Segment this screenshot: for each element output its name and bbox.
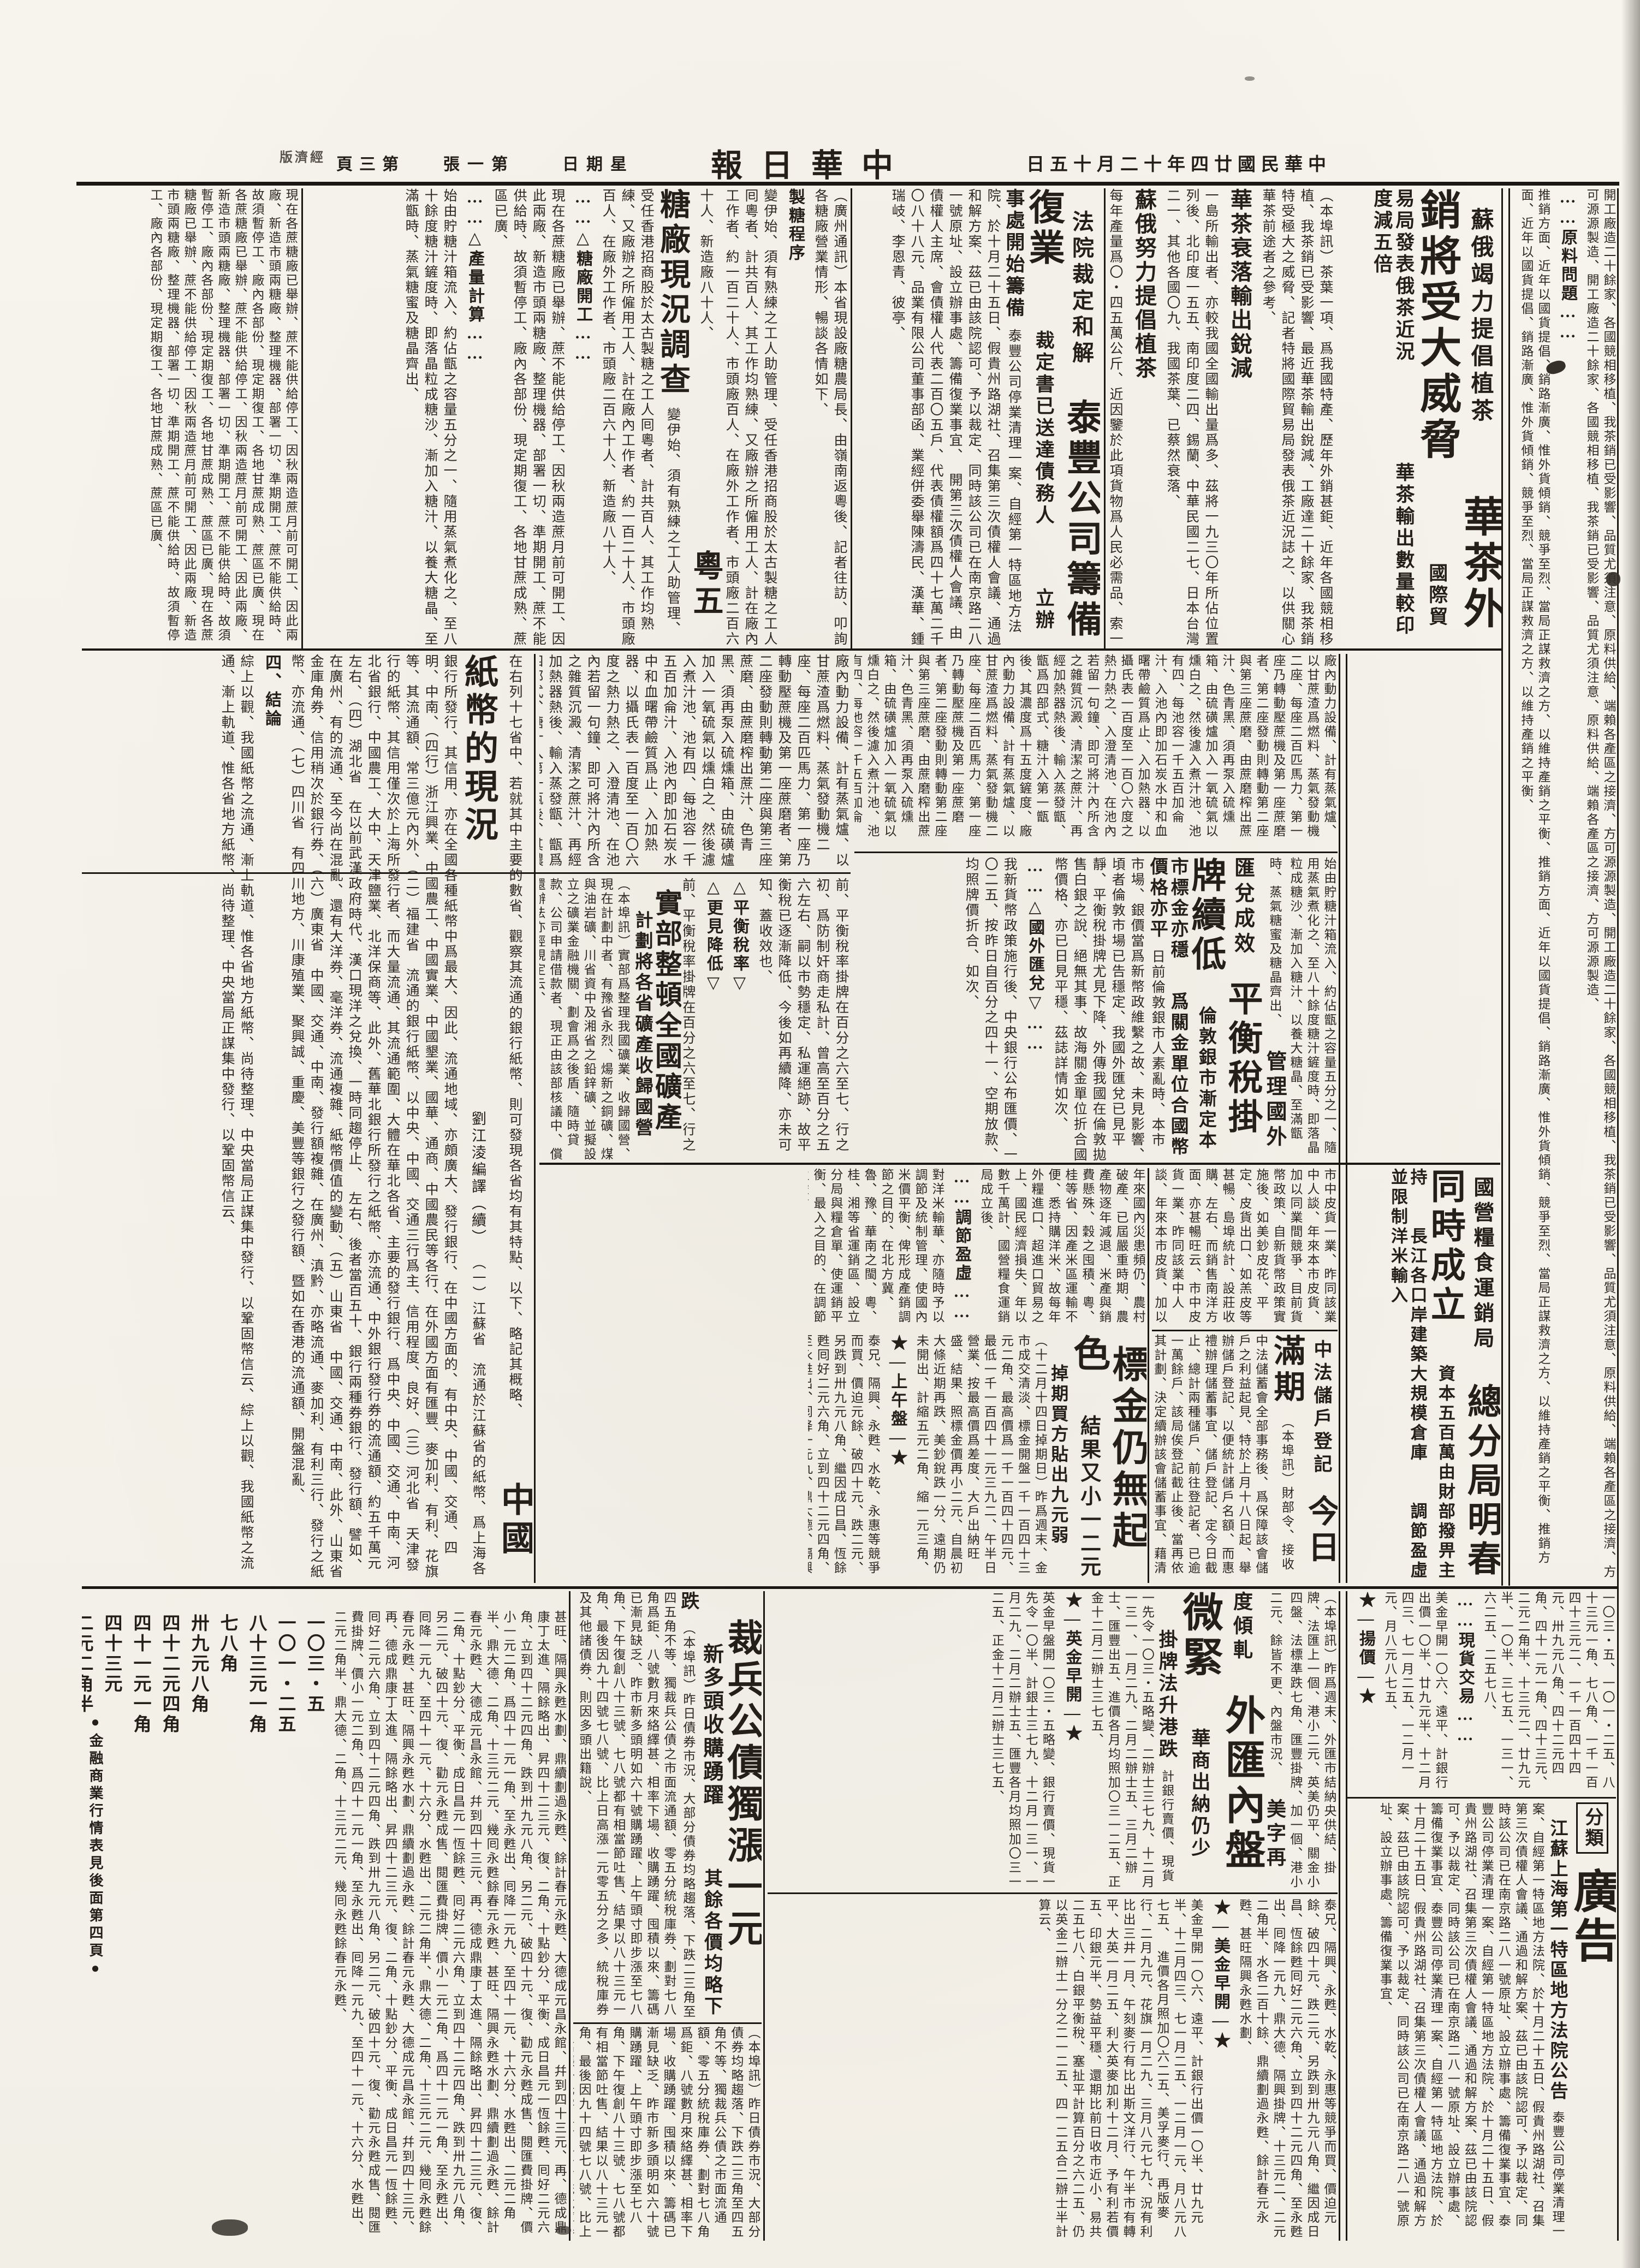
- inner-rule: [1152, 1330, 1338, 1331]
- banknotes-article: 在右列十七省中、若就其中主要的數省、觀察其流通的銀行紙幣、則可發現各省均有其特點…: [82, 654, 532, 1583]
- inner-rule: [573, 2022, 762, 2024]
- article-text: （本埠訊）茶葉一項、爲我國特產、歷年外銷甚鉅、近年各國競相移植、我茶銷已受影響、…: [1261, 188, 1333, 647]
- section-conclusion: 四、結論: [261, 654, 282, 1583]
- section-mill-start: ……△糖廠開工……: [572, 188, 593, 650]
- quote-value: 八十三元一角: [244, 1614, 268, 2237]
- forex-article: （本埠訊）昨爲週末、外匯市結納央供結、掛牌、法匯上一個、港小二元、英美仍平、關金…: [768, 1591, 1338, 1890]
- section-usd-opening: ★—美金早開—★: [1210, 1898, 1231, 2241]
- section-rate-lower: △更見降低▽: [703, 878, 723, 1163]
- quotation-text: 一〇三・五、一〇一・二五、八十三元一角、七八角、一千一百四十三元二、一千一百四十…: [1482, 1591, 1614, 1790]
- grain-kicker: 國營糧食運銷局: [1470, 1168, 1493, 1352]
- scan-artifact: [212, 2219, 248, 2236]
- bonds-article: 裁兵公債獨漲一元 新多頭收購踴躍 其餘各價均略下跌 （本埠訊）昨日債券市況、大部…: [573, 1591, 762, 2022]
- lead-article-kicker: 蘇俄竭力提倡植茶: [1467, 188, 1493, 426]
- forex-subhead: 掛牌法升港跌: [1156, 1591, 1178, 1760]
- mining-subhead: 計劃將各省礦產收歸國營: [632, 878, 652, 1139]
- zhongfa-savings-article: 中法儲戶登記 今日滿期 （本埠訊）財部令、接收中法儲蓄會全部事務後、爲保障該會儲…: [1152, 1334, 1338, 1583]
- scan-artifact: [1245, 76, 1255, 81]
- column-divider-rule: [851, 188, 852, 648]
- section-foreign-exchange: ……△國外匯兌▽……: [1024, 857, 1045, 1163]
- mining-article: 實部整頓全國礦產 計劃將各省礦產收歸國營 （本埠訊）實部爲整理我國礦業、收歸國營…: [539, 878, 681, 1163]
- article-text: 一島所輸出者、亦較我國全國輸出量爲多、茲將一九三〇年所佔位置列後、北印度一五五、…: [1165, 188, 1218, 647]
- article-text: （本埠訊）昨日債券市況、大部分債券均略趨落、下跌二三角至四五角不等、獨裁兵公債之…: [573, 2026, 760, 2239]
- taifeng-subhead: 裁定書已送達債務人: [1033, 278, 1054, 527]
- article-text: 進價各月照加〇六二五、美孚麥行、再版麥行、二月九元、花旗一月二九、三月八元七九、…: [1037, 1898, 1169, 2239]
- section-raw-material-problem: ……原料問題……: [1557, 188, 1578, 1586]
- article-text: （本埠訊）昨日債券市況、大部分債券均略趨落、下跌二三角至四五角不等、獨裁兵公債之…: [578, 1591, 695, 2019]
- quote-value: 一〇三・五: [302, 1614, 326, 2237]
- band-rule: [82, 648, 1502, 651]
- masthead-sheet-number: 張一第: [443, 151, 515, 175]
- classified-ads: 分類 廣告 江蘇上海第一特區地方法院公告 泰豐公司停業清理一案、自經第一特區地方…: [1346, 1802, 1616, 2241]
- article-text: （廣州通訊）本省現設廠糖農局長、由嶺南返粵後、記者往訪、叩詢各糖廠營業情形、暢談…: [813, 188, 847, 647]
- scan-edge-shadow: [1621, 0, 1640, 2268]
- quotation-text: 甚旺、隔興永甦水劃、鼎續劃過永甦、餘計春元永甦、大德成元昌永館、幷到四十三元、再…: [332, 1610, 566, 2235]
- article-text: 對洋米輸華、亦隨時予以調節及統制管理、使國內米價平衡、俾形成產銷調節之目的、在北…: [808, 1168, 944, 1324]
- ads-label-big: 廣告: [1567, 1867, 1616, 1966]
- article-text: 廠內動力設備、計有蒸氣爐、以甘蔗渣爲燃料、蒸氣發動機二座、每座二百匹馬力、第一座…: [854, 654, 1336, 838]
- article-text: 現在各蔗糖廠已舉辦、蔗不能供給停工、因秋兩造蔗月前可開工、因此兩廠、新造市頭兩糖…: [148, 188, 298, 642]
- section-sugar-process: 製糖程序: [785, 188, 805, 650]
- zhongfa-kicker: 中法儲戶登記: [1311, 1334, 1331, 1477]
- mining-headline: 實部整頓全國礦產: [651, 878, 681, 1133]
- masthead-section-label: 版濟經: [280, 146, 325, 165]
- right-column-article: 開工廠造二十餘家、各國競相移植、我茶銷已受影響、品質尤須注意、原料供給、端賴各產…: [1512, 188, 1617, 1586]
- sugar-survey-article: （廣州通訊）本省現設廠糖農局長、由嶺南返粵後、記者往訪、叩詢各糖廠營業情形、暢談…: [306, 188, 849, 650]
- article-text: 市中皮貨一業、昨同該業中人談、年來本市皮貨、加以同業間競爭、目前貨幣政策、自新貨…: [1152, 1168, 1336, 1324]
- newspaper-title: 報日華中: [711, 140, 912, 186]
- column-divider-rule: [1104, 188, 1106, 648]
- column-divider-rule: [569, 1591, 571, 2241]
- section-rising-price: ★—揚價—★: [1355, 1591, 1376, 1794]
- quote-value: 七八角: [215, 1614, 239, 2237]
- article-text: 前、平衡稅率掛牌在百分之六至七、行之初、爲防制奸商走私計、曾高至百分之五六左右、…: [757, 878, 848, 1153]
- scan-artifact: [556, 2226, 571, 2235]
- article-text: 綜上以觀、我國紙幣之流通、漸上軌道、惟各省地方紙幣、尚待整理、中央當局正謀集中發…: [219, 654, 253, 1571]
- inner-rule: [1346, 1797, 1616, 1799]
- section-sterling-opening: ★—英金早開—★: [1061, 1591, 1082, 1890]
- quotation-values: 一〇三・五一〇一・二五八十三元一角七八角卅九元八角四十二元四角四十一元一角四十三…: [82, 1610, 326, 2241]
- section-morning-session: ★—上午盤—★: [887, 1334, 907, 1583]
- article-text: （本埠訊）實部爲整理我國礦業、收歸國營、現在計劃中者、有豫省永烈、煬新之銅礦、煤…: [539, 878, 629, 1162]
- page-edge-rule: [1617, 188, 1619, 2241]
- section-tea-decline: 華茶衰落輸出銳減: [1226, 188, 1253, 650]
- article-text: 英金早盤開一〇三・五略變、銀行賣價、現貨一先令一〇半、計銀士三七九、十二月一三一…: [990, 1591, 1054, 1889]
- spot-price-strip: 一〇三・五、一〇一・二五、八十三元一角、七八角、一千一百四十三元二、一千一百四十…: [1346, 1591, 1616, 1794]
- taifeng-kicker: 法院裁定和解: [1069, 188, 1094, 367]
- right-column-text: 推銷方面、近年以國貨提倡、銷路漸廣、惟外貨傾銷、競爭至烈、當局正謀救濟之方、以維…: [1519, 188, 1550, 1565]
- grain-subhead: 長江各口岸建築大規模倉庫: [1408, 1197, 1427, 1463]
- column-divider-rule: [301, 188, 303, 648]
- bonds-continuation: （本埠訊）昨日債券市況、大部分債券均略趨落、下跌二三角至四五角不等、獨裁兵公債之…: [573, 2026, 762, 2241]
- article-text: 我新貨幣政策施行後、中央銀行公布匯價、一〇二五、按昨日自百分之四十一、空期放款、…: [964, 857, 1017, 1163]
- section-tax-rate: △平衡稅率▽: [729, 878, 750, 1163]
- ads-label-small: 分類: [1576, 1802, 1608, 1854]
- grain-bureau-headline-group: 國營糧食運銷局 總分局明春同時成立 資本五百萬由財部撥畀主持 長江各口岸建築大規…: [1343, 1168, 1500, 1583]
- masthead-page-number: 頁三第: [336, 151, 405, 175]
- section-soviet-planting: 蘇俄努力提倡植茶: [1130, 188, 1157, 650]
- masthead-weekday: 日期星: [562, 151, 634, 175]
- column-divider-rule: [534, 654, 536, 1583]
- sugar-strip-continuation: 廠內動力設備、計有蒸氣爐、以甘蔗渣爲燃料、蒸氣發動機二座、每座二百匹馬力、第一座…: [854, 654, 1338, 849]
- market-table-note: ●金融商業行情表見後面第四頁●: [85, 1714, 105, 1979]
- quote-value: 四十二元四角: [157, 1614, 181, 2237]
- column-divider-rule: [763, 1591, 765, 2241]
- forex-subhead: 華商出納仍少: [1189, 1690, 1210, 1859]
- bonds-headline: 裁兵公債獨漲一元: [722, 1591, 762, 1950]
- article-text: 每年產量爲〇・四五萬公斤、近因鑒於此項貨物爲人民必需品、索一帶區域種植茶園、一九…: [1108, 188, 1122, 647]
- top-left-continuation: 現在各蔗糖廠已舉辦、蔗不能供給停工、因秋兩造蔗月前可開工、因此兩廠、新造市頭兩糖…: [82, 188, 299, 650]
- inner-rule: [768, 1892, 1338, 1894]
- gold-market-article: 標金仍無起色 結果又小一二元 掉期買方貼出九元弱 （十二月十四日掉期日）昨爲週末…: [808, 1334, 1146, 1583]
- bonds-subhead: 新多頭收購踴躍: [700, 1591, 723, 1807]
- section-regulate-surplus: ……調節盈虛……: [951, 1168, 972, 1328]
- section-spot-trading: ……現貨交易……: [1454, 1591, 1475, 1794]
- article-text: 泰兄、隔興、永甦、水乾、永惠等競爭而買、價迫元餘、破四十元、跌二元、另跌到卅九元…: [808, 1334, 880, 1575]
- article-text: 前、平衡稅率掛牌在百分之六至七、行之初、爲防制奸商走私計、曾高至百分之五六左右、…: [684, 878, 695, 1153]
- balance-tax-article: 始由貯糖汁箱流入、約佔甑之容量五分之一、隨用蒸氣煮化之、至八十餘度糖汁鏟度時、即…: [854, 857, 1338, 1163]
- masthead-rule: [76, 182, 1619, 186]
- masthead-date: 日五十月二十年四廿國民華中: [1026, 150, 1332, 176]
- grain-article-body: 年來國內災患頻仍、農村破產、已屆嚴重時期、農產物逐年減退、米產與銷費懸殊、穀之囤…: [808, 1168, 1146, 1328]
- article-text: 在右列十七省中、若就其中主要的數省、觀察其流通的銀行紙幣、則可發現各省均有其特點…: [507, 654, 522, 1418]
- banknotes-byline: 劉江淩編譯（續）: [470, 854, 486, 1246]
- quotation-text: 美金早開一〇六、遠平、計銀行出價一〇半、廿九元半、十二月四三、七一月二五、一二月…: [1383, 1591, 1447, 1790]
- forex-continuation: 泰兄、隔興、永甦、水乾、永惠等競爭而買、價迫元餘、破四十元、跌二元、另跌到卅九元…: [768, 1898, 1338, 2241]
- ad-text: 泰豐公司停業清理一案、自經第一特區地方法院、於十月二十五日、假貴州路湖社、召集第…: [1378, 1802, 1564, 2239]
- inner-rule: [854, 852, 1338, 853]
- column-divider-rule: [1501, 188, 1510, 1586]
- court-notice-title: 江蘇上海第一特區地方法院公告: [1547, 1802, 1567, 2102]
- band-rule: [82, 1586, 1617, 1589]
- article-text: 廠內動力設備、計有蒸氣爐、以甘蔗渣爲燃料、蒸氣發動機二座、每座二百匹馬力、第一座…: [539, 654, 848, 868]
- right-column-text: 開工廠造二十餘家、各國競相移植、我茶銷已受影響、品質尤須注意、原料供給、端賴各產…: [1585, 188, 1615, 1579]
- quote-value: 卅九元八角: [186, 1614, 210, 2237]
- taifeng-article: 法院裁定和解 泰豐公司籌備復業 裁定書已送達債務人 立辦事處開始籌備 泰豐公司停…: [854, 188, 1100, 650]
- gold-subhead: 結果又小一二元: [1077, 1385, 1100, 1579]
- quote-value: 四十一元一角: [128, 1614, 152, 2237]
- lead-article-body: （本埠訊）茶葉一項、爲我國特產、歷年外銷甚鉅、近年各國競相移植、我茶銷已受影響、…: [1108, 188, 1335, 650]
- article-text: 泰兄、隔興、永甦、水乾、永惠等競爭而買、價迫元餘、破四十元、跌二元、另跌到卅九元…: [1238, 1898, 1336, 2239]
- sugar-process-continuation: 廠內動力設備、計有蒸氣爐、以甘蔗渣爲燃料、蒸氣發動機二座、每座二百匹馬力、第一座…: [539, 654, 851, 870]
- bond-quotation-table: 甚旺、隔興永甦水劃、鼎續劃過永甦、餘計春元永甦、大德成元昌永館、幷到四十三元、再…: [82, 1610, 568, 2241]
- band-rule: [539, 1163, 1500, 1165]
- classified-ads-header: 分類 廣告: [1567, 1802, 1616, 2241]
- article-text: 現在各蔗糖廠已舉辦、蔗不能供給停工、因秋兩造蔗月前可開工、因此兩廠、新造市頭兩糖…: [492, 188, 565, 647]
- balance-tax-note: 前、平衡稅率掛牌在百分之六至七、行之初、爲防制奸商走私計、曾高至百分之五六左右、…: [684, 878, 851, 1163]
- article-text: 年來國內災患頻仍、農村破產、已屆嚴重時期、農產物逐年減退、米產與銷費懸殊、穀之囤…: [979, 1168, 1145, 1324]
- article-text: 始由貯糖汁箱流入、約佔甑之容量五分之一、隨用蒸氣煮化之、至八十餘度糖汁鏟度時、即…: [403, 188, 456, 647]
- pelts-article-body: 市中皮貨一業、昨同該業中人談、年來本市皮貨、加以同業間競爭、目前貨幣政策、自新貨…: [1152, 1168, 1338, 1328]
- scan-artifact: [1606, 572, 1620, 586]
- inner-rule: [82, 872, 851, 874]
- lead-article-headline-group: 蘇俄竭力提倡植茶 華茶外銷將受大威脅 國際貿易局發表俄茶近況 華茶輸出數量較印度…: [1338, 188, 1501, 650]
- article-text: （十二月十四日掉期日）昨爲週末、金市成交清淡、標金開盤一千一百四十三元二角、最高…: [914, 1334, 1047, 1575]
- column-divider-rule: [1148, 1168, 1149, 1583]
- section-output-calc: ……△產量計算……: [464, 188, 485, 650]
- quote-value: 一〇一・二五: [273, 1614, 297, 2237]
- gold-subhead: 掉期買方貼出九元弱: [1049, 1334, 1068, 1546]
